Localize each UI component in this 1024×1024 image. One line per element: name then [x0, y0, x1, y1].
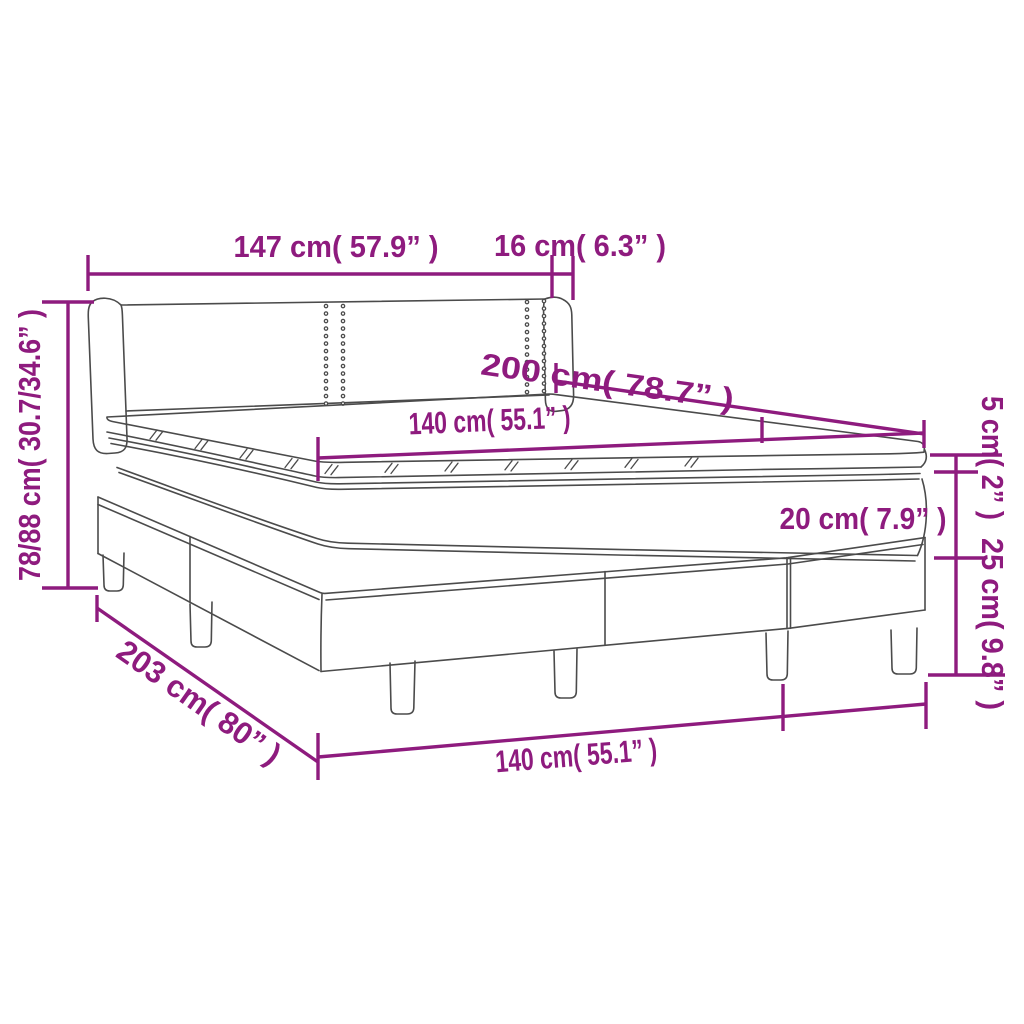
- dimension-labels: 147 cm( 57.9” ) 16 cm( 6.3” ) 78/88 cm( …: [12, 228, 1010, 779]
- dimension-diagram: 147 cm( 57.9” ) 16 cm( 6.3” ) 78/88 cm( …: [0, 0, 1024, 1024]
- label-wing-depth: 16 cm( 6.3” ): [494, 228, 666, 263]
- label-total-length: 203 cm( 80” ): [110, 633, 287, 772]
- label-mattress-width: 140 cm( 55.1” ): [408, 399, 571, 441]
- label-mattress-height: 20 cm( 7.9” ): [780, 501, 947, 536]
- label-headboard-width: 147 cm( 57.9” ): [234, 229, 439, 264]
- bed-diagram-canvas: 147 cm( 57.9” ) 16 cm( 6.3” ) 78/88 cm( …: [0, 0, 1024, 1024]
- label-total-height: 78/88 cm( 30.7/34.6” ): [12, 309, 47, 581]
- bed-legs: [103, 553, 917, 714]
- label-base-height: 25 cm( 9.8” ): [975, 538, 1010, 710]
- label-topper-height: 5 cm( 2” ): [975, 396, 1010, 520]
